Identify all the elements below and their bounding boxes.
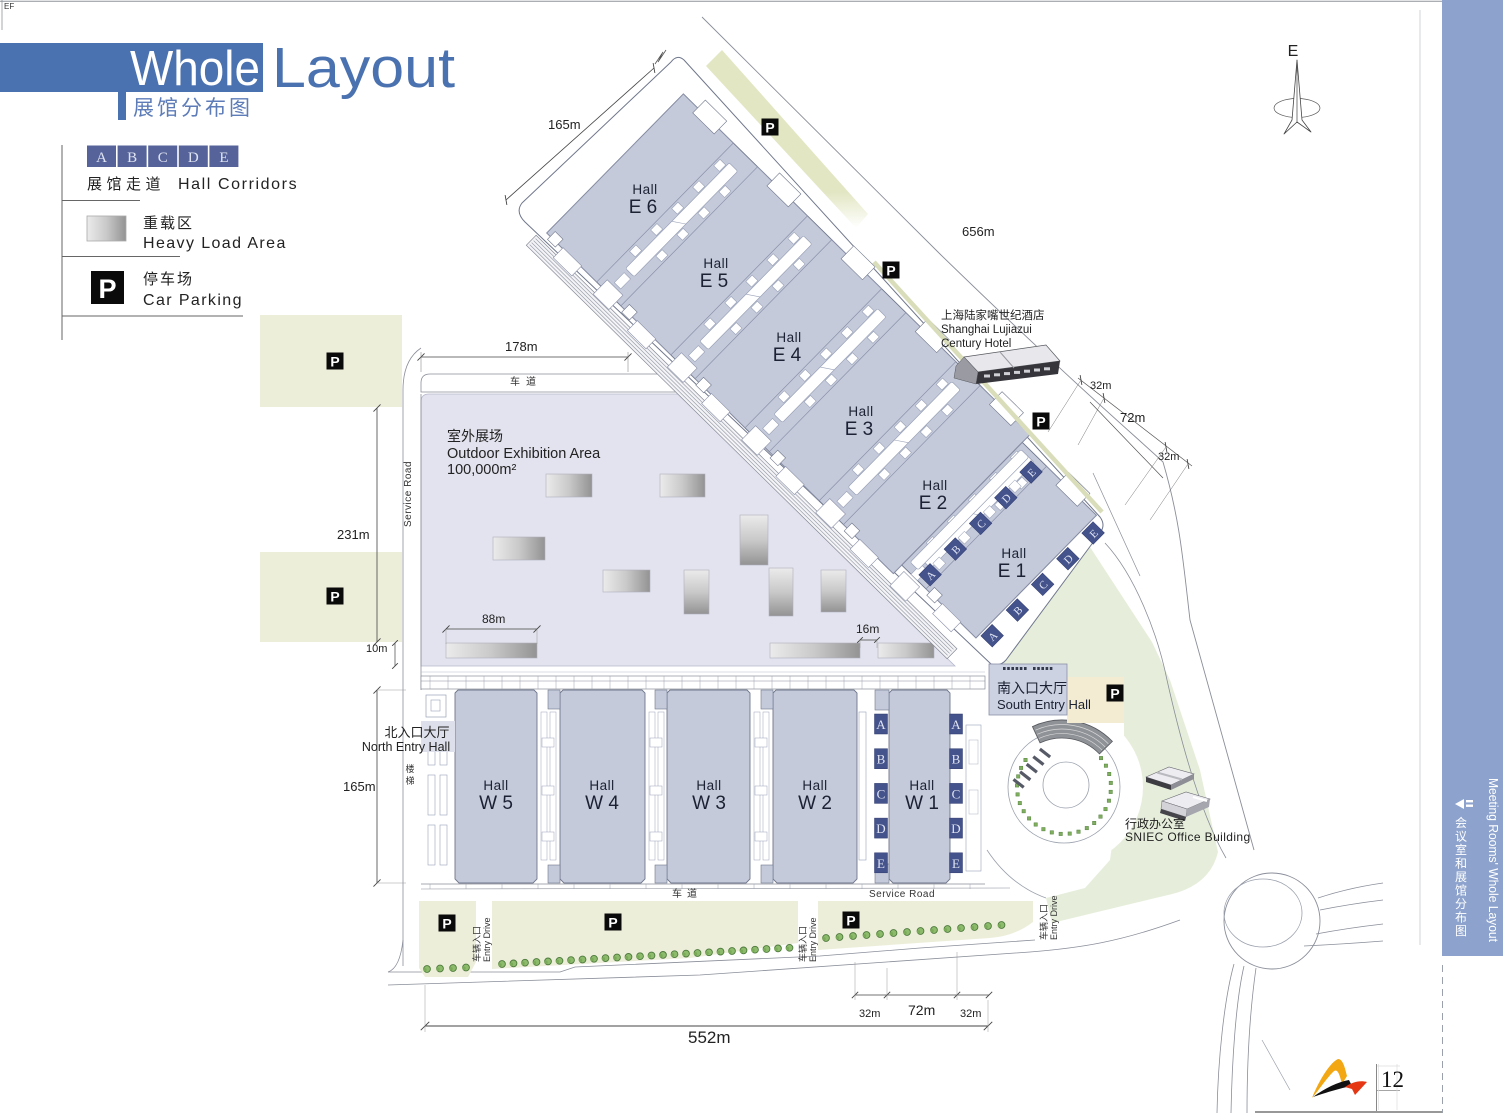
svg-text:上海陆家嘴世纪酒店: 上海陆家嘴世纪酒店 [941, 308, 1045, 322]
svg-text:P: P [442, 915, 451, 931]
svg-text:Outdoor Exhibition Area: Outdoor Exhibition Area [447, 446, 601, 462]
svg-text:车辆入口: 车辆入口 [1038, 904, 1049, 940]
svg-text:C: C [158, 150, 168, 166]
svg-text:E: E [877, 856, 885, 871]
svg-text:231m: 231m [337, 527, 370, 542]
svg-text:P: P [765, 119, 774, 135]
svg-text:E 3: E 3 [845, 419, 874, 440]
svg-text:32m: 32m [859, 1008, 880, 1020]
svg-text:楼: 楼 [405, 763, 414, 774]
svg-text:车道: 车道 [510, 375, 542, 388]
svg-text:梯: 梯 [405, 775, 414, 786]
svg-text:Whole: Whole [130, 42, 260, 96]
svg-text:Hall: Hall [632, 182, 657, 197]
svg-text:W 3: W 3 [692, 793, 726, 814]
svg-text:16m: 16m [856, 622, 879, 636]
svg-text:A: A [876, 717, 886, 732]
svg-text:Hall: Hall [703, 256, 728, 271]
svg-text:P: P [330, 353, 339, 369]
svg-text:SNIEC Office Building: SNIEC Office Building [1125, 830, 1251, 844]
svg-text:E: E [1288, 43, 1299, 60]
svg-text:Heavy Load Area: Heavy Load Area [143, 235, 287, 252]
svg-text:图: 图 [1455, 924, 1467, 938]
svg-text:车辆入口: 车辆入口 [471, 926, 482, 962]
svg-text:Service Road: Service Road [869, 889, 935, 900]
svg-text:会: 会 [1455, 816, 1467, 830]
svg-text:W 1: W 1 [905, 793, 939, 814]
svg-text:North Entry Hall: North Entry Hall [362, 740, 450, 754]
svg-text:552m: 552m [688, 1028, 731, 1047]
svg-text:100,000m²: 100,000m² [447, 462, 516, 478]
svg-text:88m: 88m [482, 612, 505, 626]
svg-text:Hall: Hall [1001, 546, 1026, 561]
svg-text:Century Hotel: Century Hotel [941, 338, 1011, 350]
svg-text:Service Road: Service Road [403, 461, 414, 527]
svg-text:P: P [98, 274, 116, 304]
svg-text:停车场: 停车场 [143, 271, 194, 288]
svg-text:北入口大厅: 北入口大厅 [384, 725, 449, 740]
svg-text:72m: 72m [1120, 410, 1145, 425]
svg-text:行政办公室: 行政办公室 [1125, 816, 1185, 831]
svg-text:W 2: W 2 [798, 793, 832, 814]
svg-text:馆: 馆 [1455, 883, 1467, 898]
svg-text:E 5: E 5 [700, 271, 729, 292]
svg-text:656m: 656m [962, 224, 995, 239]
svg-text:Hall: Hall [776, 330, 801, 345]
svg-text:178m: 178m [505, 339, 538, 354]
svg-text:B: B [952, 752, 961, 767]
svg-text:展馆分布图: 展馆分布图 [133, 97, 253, 120]
svg-text:C: C [877, 786, 886, 801]
svg-text:展馆走道: 展馆走道 [87, 176, 165, 193]
svg-text:Hall: Hall [589, 778, 614, 793]
svg-text:W 5: W 5 [479, 793, 513, 814]
svg-text:车辆入口: 车辆入口 [797, 926, 808, 962]
svg-text:South Entry Hall: South Entry Hall [997, 697, 1091, 712]
svg-text:分: 分 [1455, 897, 1467, 911]
svg-text:展: 展 [1455, 870, 1467, 884]
svg-text:32m: 32m [960, 1008, 981, 1020]
svg-text:P: P [846, 912, 855, 928]
svg-text:Car Parking: Car Parking [143, 292, 243, 309]
svg-text:Entry Drive: Entry Drive [808, 917, 818, 962]
svg-text:E: E [219, 150, 228, 166]
svg-text:Entry Drive: Entry Drive [1049, 895, 1059, 940]
svg-text:D: D [876, 821, 885, 836]
svg-text:32m: 32m [1158, 451, 1179, 463]
svg-text:D: D [951, 821, 960, 836]
svg-text:Layout: Layout [272, 36, 455, 100]
svg-text:C: C [952, 786, 961, 801]
svg-text:重载区: 重载区 [143, 215, 194, 232]
svg-text:Hall: Hall [802, 778, 827, 793]
svg-text:D: D [188, 150, 199, 166]
svg-text:Hall: Hall [696, 778, 721, 793]
svg-text:B: B [877, 752, 886, 767]
svg-text:车道: 车道 [672, 887, 702, 900]
svg-text:Hall Corridors: Hall Corridors [178, 176, 298, 193]
svg-text:10m: 10m [366, 643, 387, 655]
svg-text:E 6: E 6 [629, 197, 658, 218]
svg-text:12: 12 [1381, 1067, 1404, 1092]
svg-text:Hall: Hall [922, 478, 947, 493]
svg-text:Hall: Hall [848, 404, 873, 419]
svg-text:P: P [1036, 413, 1045, 429]
svg-text:P: P [886, 262, 895, 278]
svg-text:E 1: E 1 [998, 561, 1027, 582]
svg-text:室外展场: 室外展场 [447, 428, 503, 444]
svg-text:室: 室 [1455, 842, 1467, 857]
svg-text:布: 布 [1455, 911, 1467, 925]
svg-text:E 4: E 4 [773, 345, 802, 366]
svg-text:E 2: E 2 [919, 493, 948, 514]
svg-text:A: A [951, 717, 961, 732]
svg-text:Entry Drive: Entry Drive [482, 917, 492, 962]
svg-text:A: A [96, 150, 107, 166]
svg-text:B: B [127, 150, 137, 166]
svg-text:32m: 32m [1090, 380, 1111, 392]
svg-text:Hall: Hall [483, 778, 508, 793]
svg-text:Shanghai Lujiazui: Shanghai Lujiazui [941, 324, 1032, 336]
svg-text:P: P [1110, 685, 1119, 701]
svg-text:P: P [330, 588, 339, 604]
svg-text:165m: 165m [548, 117, 581, 132]
svg-text:E: E [952, 856, 960, 871]
svg-text:议: 议 [1455, 830, 1467, 844]
svg-text:Hall: Hall [909, 778, 934, 793]
svg-text:165m: 165m [343, 779, 376, 794]
svg-text:和: 和 [1455, 857, 1467, 871]
svg-text:Meeting Rooms' Whole Layout: Meeting Rooms' Whole Layout [1486, 778, 1501, 942]
svg-text:EF: EF [4, 2, 14, 11]
svg-text:南入口大厅: 南入口大厅 [997, 680, 1067, 696]
svg-text:P: P [608, 914, 617, 930]
svg-text:72m: 72m [908, 1002, 935, 1018]
svg-text:W 4: W 4 [585, 793, 619, 814]
